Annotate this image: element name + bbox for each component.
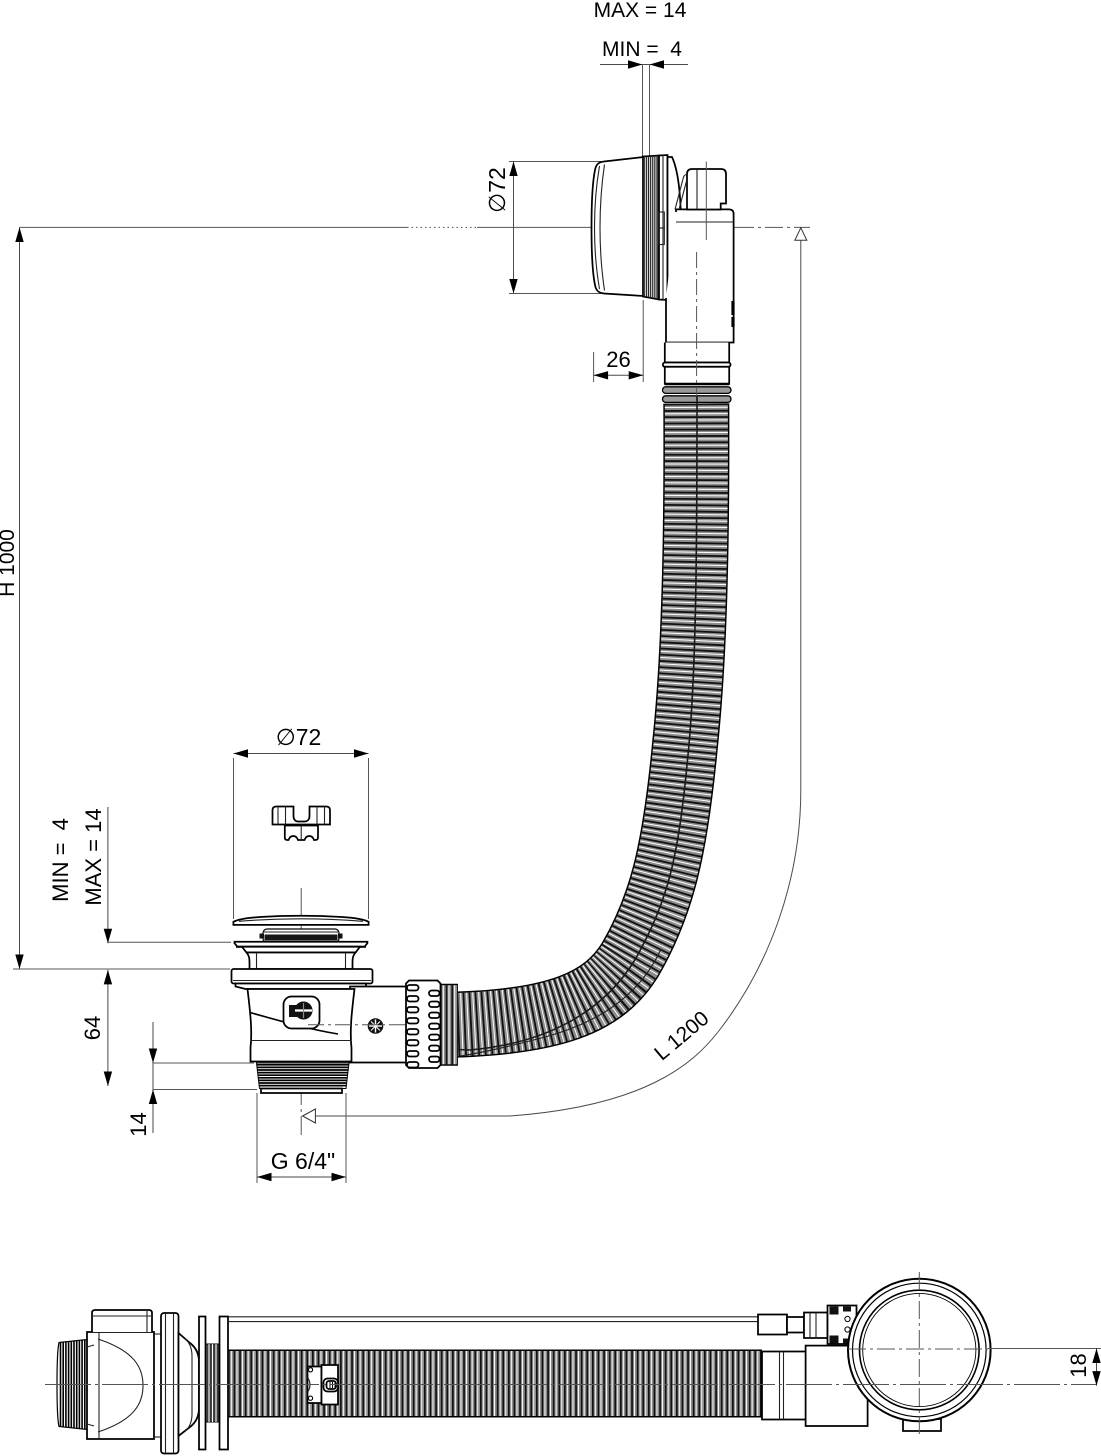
svg-text:MAX = 14: MAX = 14 — [594, 0, 687, 22]
svg-text:MIN = 4: MIN = 4 — [48, 818, 73, 902]
svg-text:18: 18 — [1066, 1353, 1091, 1377]
svg-text:26: 26 — [606, 347, 630, 372]
svg-text:H 1000: H 1000 — [0, 529, 19, 597]
svg-text:∅72: ∅72 — [484, 167, 510, 213]
svg-text:∅72: ∅72 — [276, 724, 322, 750]
svg-text:14: 14 — [126, 1112, 151, 1136]
svg-text:MAX = 14: MAX = 14 — [81, 808, 106, 905]
svg-text:MIN = 4: MIN = 4 — [602, 38, 682, 61]
svg-text:G 6/4": G 6/4" — [271, 1148, 335, 1174]
svg-text:64: 64 — [80, 1016, 105, 1040]
